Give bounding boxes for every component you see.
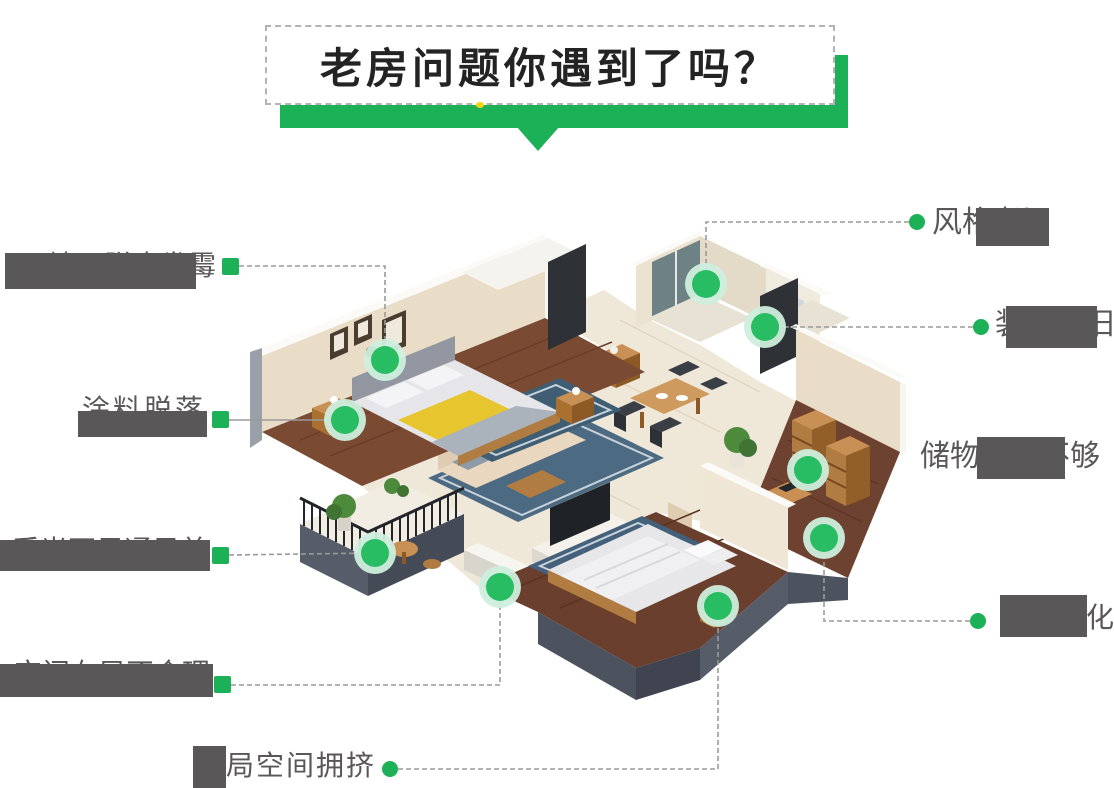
plate: [676, 395, 688, 401]
plant-foliage: [326, 504, 342, 520]
label-cover-no-storage: [977, 437, 1065, 479]
marker-aging-pipes: [970, 613, 986, 629]
table-leg: [696, 398, 700, 414]
base-skirt: [788, 572, 848, 604]
hotspot-old-style[interactable]: [685, 263, 727, 305]
label-cover-wall-mold: [5, 253, 196, 289]
marker-wall-mold: [222, 258, 239, 275]
wall-cut-edge: [900, 382, 906, 452]
marker-paint-peel: [212, 411, 229, 428]
plate: [656, 393, 668, 399]
marker-poor-lighting: [212, 547, 229, 564]
outer-wall-face: [250, 348, 262, 448]
hotspot-crowded[interactable]: [697, 585, 739, 627]
hotspot-aging-pipes[interactable]: [803, 517, 845, 559]
hotspot-paint-peel[interactable]: [324, 399, 366, 441]
label-cover-bad-layout: [0, 664, 213, 697]
label-cover-aging-pipes: [1000, 595, 1087, 637]
label-cover-old-style: [976, 208, 1049, 246]
table-leg: [640, 412, 644, 428]
stool: [423, 559, 441, 569]
table-leg: [402, 552, 406, 564]
marker-old-style: [909, 214, 925, 230]
dark-doorway: [548, 244, 586, 350]
hotspot-wall-mold[interactable]: [364, 339, 406, 381]
plant-pot: [338, 516, 351, 531]
plant-foliage: [397, 485, 409, 497]
marker-old-decor: [973, 319, 989, 335]
marker-crowded: [382, 761, 398, 777]
hotspot-old-decor[interactable]: [744, 306, 786, 348]
label-cover-old-decor: [1006, 306, 1097, 348]
hotspot-bad-layout[interactable]: [479, 566, 521, 608]
marker-bad-layout: [214, 676, 231, 693]
bookshelf-front: [826, 446, 846, 506]
vase: [610, 346, 618, 354]
line-bad-layout: [231, 587, 500, 685]
label-cover-crowded: [193, 746, 226, 788]
hotspot-no-storage[interactable]: [787, 449, 829, 491]
label-cover-poor-lighting: [0, 540, 210, 571]
plant-foliage: [739, 439, 757, 457]
label-cover-paint-peel: [78, 411, 207, 437]
bookshelf-side: [846, 446, 870, 506]
lamp: [572, 387, 580, 395]
hotspot-poor-lighting[interactable]: [354, 532, 396, 574]
